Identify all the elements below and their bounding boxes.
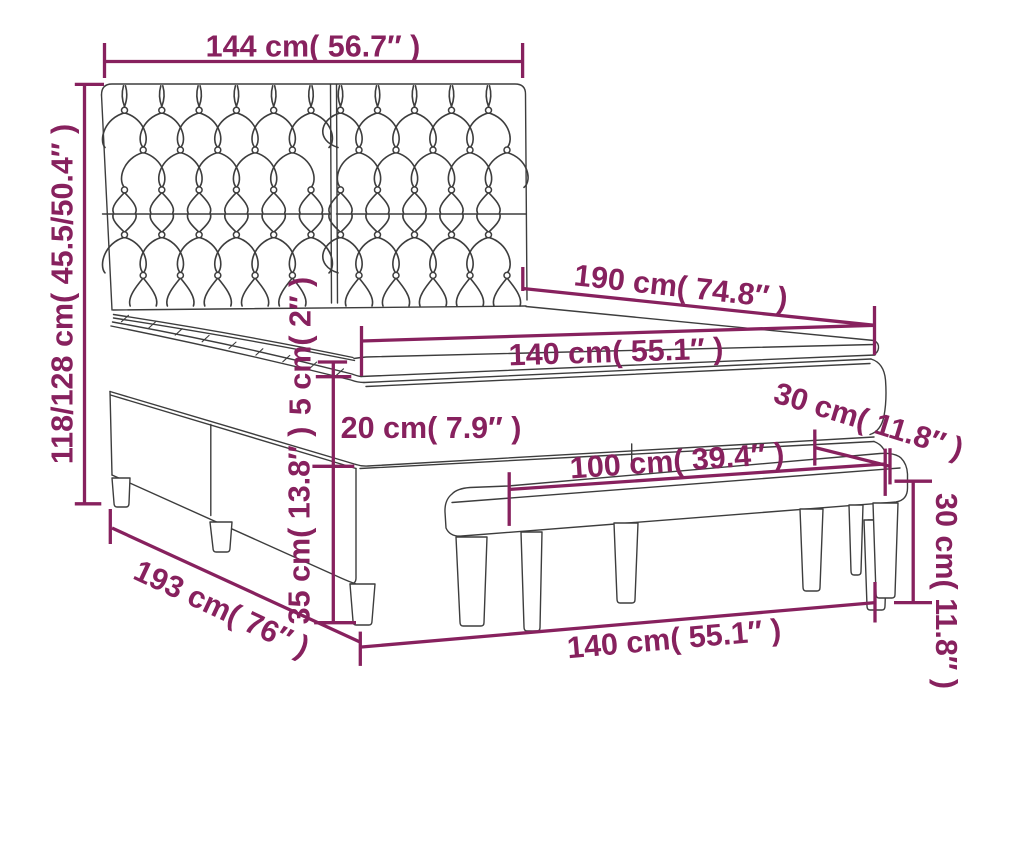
svg-text:30 cm( 11.8″ ): 30 cm( 11.8″ )	[929, 493, 963, 689]
svg-text:20 cm( 7.9″ ): 20 cm( 7.9″ )	[341, 411, 522, 445]
svg-text:144 cm( 56.7″ ): 144 cm( 56.7″ )	[206, 29, 421, 63]
svg-text:140 cm( 55.1″ ): 140 cm( 55.1″ )	[508, 332, 724, 373]
svg-text:118/128 cm( 45.5/50.4″ ): 118/128 cm( 45.5/50.4″ )	[45, 124, 79, 464]
svg-text:5 cm( 2″ ): 5 cm( 2″ )	[284, 277, 318, 415]
svg-text:35 cm( 13.8″ ): 35 cm( 13.8″ )	[282, 427, 316, 625]
